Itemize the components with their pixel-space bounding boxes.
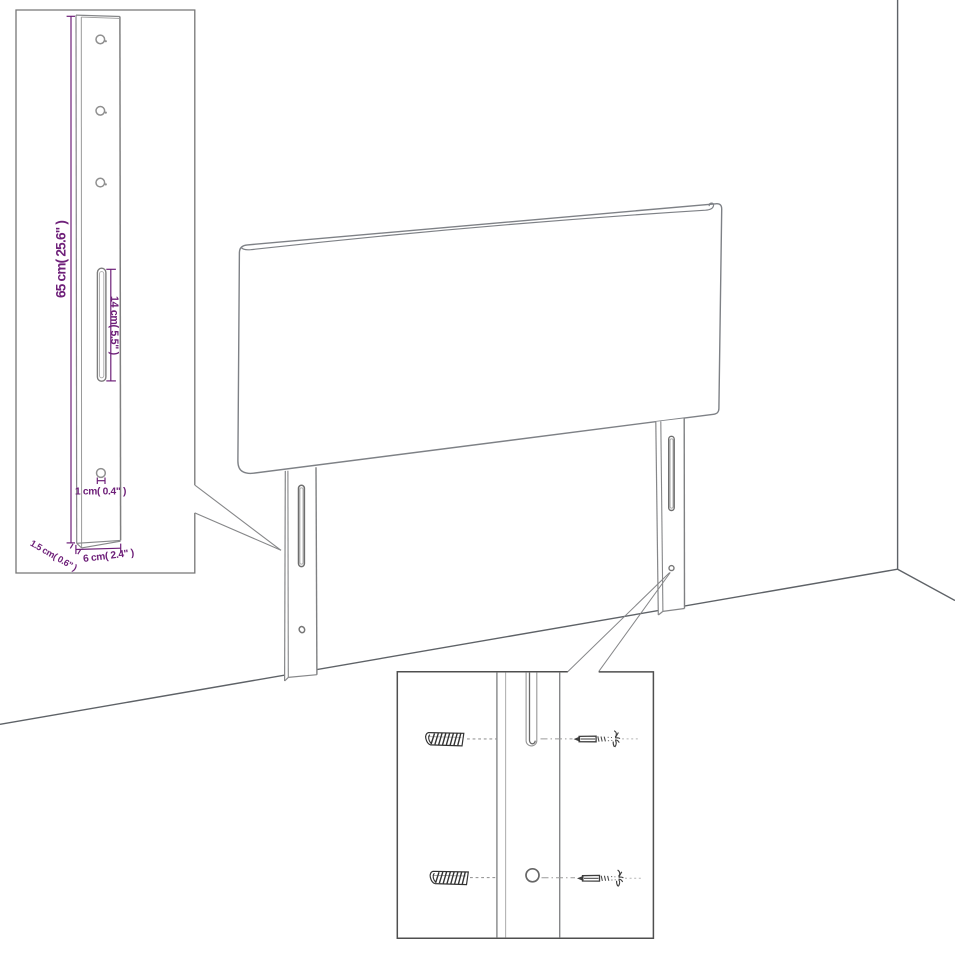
svg-text:65 cm( 25.6" ): 65 cm( 25.6" ) — [54, 221, 69, 298]
svg-text:1 cm( 0.4" ): 1 cm( 0.4" ) — [75, 486, 126, 497]
svg-text:14 cm( 5.5" ): 14 cm( 5.5" ) — [108, 296, 120, 355]
